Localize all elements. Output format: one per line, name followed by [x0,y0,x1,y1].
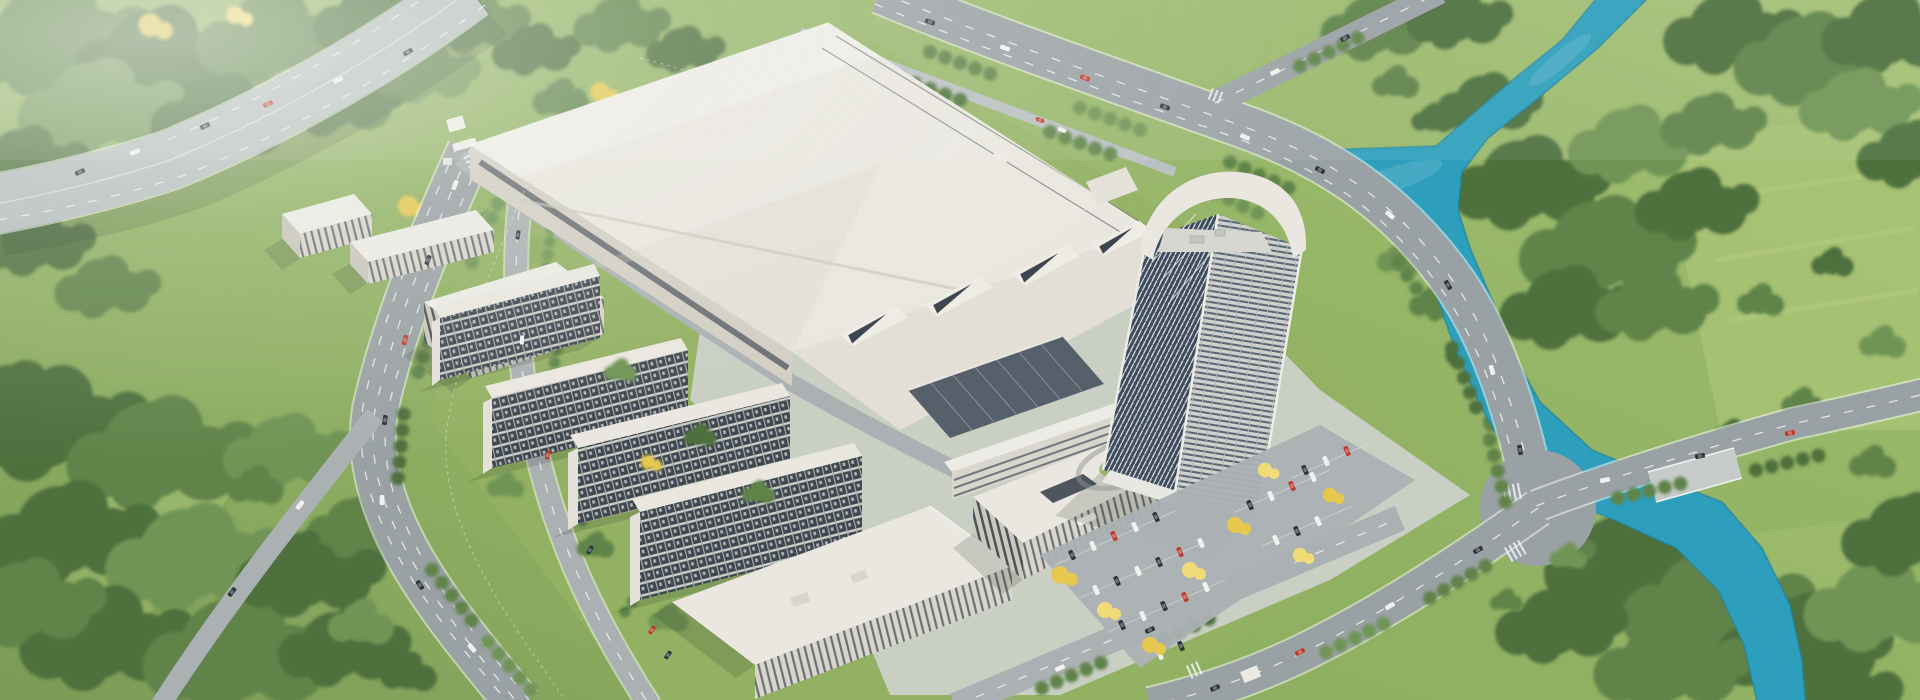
aerial-campus-rendering [0,0,1920,700]
render-canvas [0,0,1920,700]
horizon-haze [0,0,1920,160]
